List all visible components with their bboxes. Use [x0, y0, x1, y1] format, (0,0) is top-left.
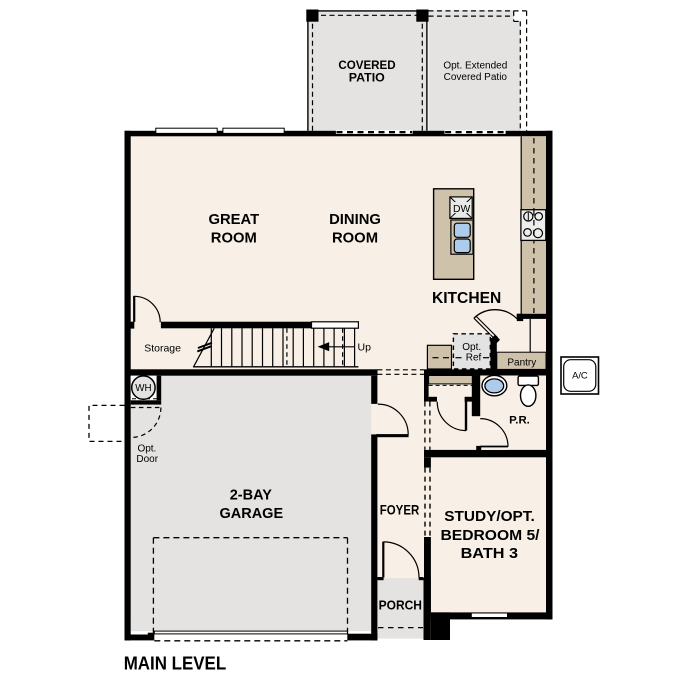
- svg-text:Opt. Extended: Opt. Extended: [443, 60, 507, 71]
- svg-text:ROOM: ROOM: [211, 231, 257, 247]
- svg-text:P.R.: P.R.: [509, 414, 530, 426]
- svg-text:Opt.: Opt.: [137, 443, 156, 454]
- svg-text:2-BAY: 2-BAY: [230, 487, 273, 503]
- svg-text:MAIN LEVEL: MAIN LEVEL: [124, 652, 227, 673]
- svg-text:Door: Door: [136, 454, 158, 465]
- svg-text:Up: Up: [358, 342, 372, 354]
- svg-text:BEDROOM 5/: BEDROOM 5/: [441, 527, 541, 544]
- svg-text:KITCHEN: KITCHEN: [432, 290, 501, 307]
- svg-text:Covered Patio: Covered Patio: [444, 72, 508, 83]
- svg-text:A/C: A/C: [572, 370, 588, 381]
- svg-text:PATIO: PATIO: [349, 71, 385, 84]
- svg-text:PORCH: PORCH: [379, 599, 422, 613]
- svg-text:Ref: Ref: [466, 353, 482, 364]
- svg-text:Opt.: Opt.: [462, 342, 481, 353]
- svg-text:DW: DW: [453, 204, 471, 215]
- svg-text:Pantry: Pantry: [507, 357, 536, 368]
- svg-text:BATH 3: BATH 3: [461, 545, 518, 562]
- svg-text:GREAT: GREAT: [208, 212, 259, 228]
- svg-text:COVERED: COVERED: [338, 59, 395, 72]
- svg-text:FOYER: FOYER: [380, 501, 420, 517]
- svg-text:STUDY/OPT.: STUDY/OPT.: [444, 508, 535, 525]
- svg-text:Storage: Storage: [144, 343, 181, 355]
- svg-text:ROOM: ROOM: [332, 231, 378, 247]
- svg-text:GARAGE: GARAGE: [219, 506, 283, 522]
- svg-text:WH: WH: [135, 383, 151, 394]
- svg-text:DINING: DINING: [329, 212, 381, 228]
